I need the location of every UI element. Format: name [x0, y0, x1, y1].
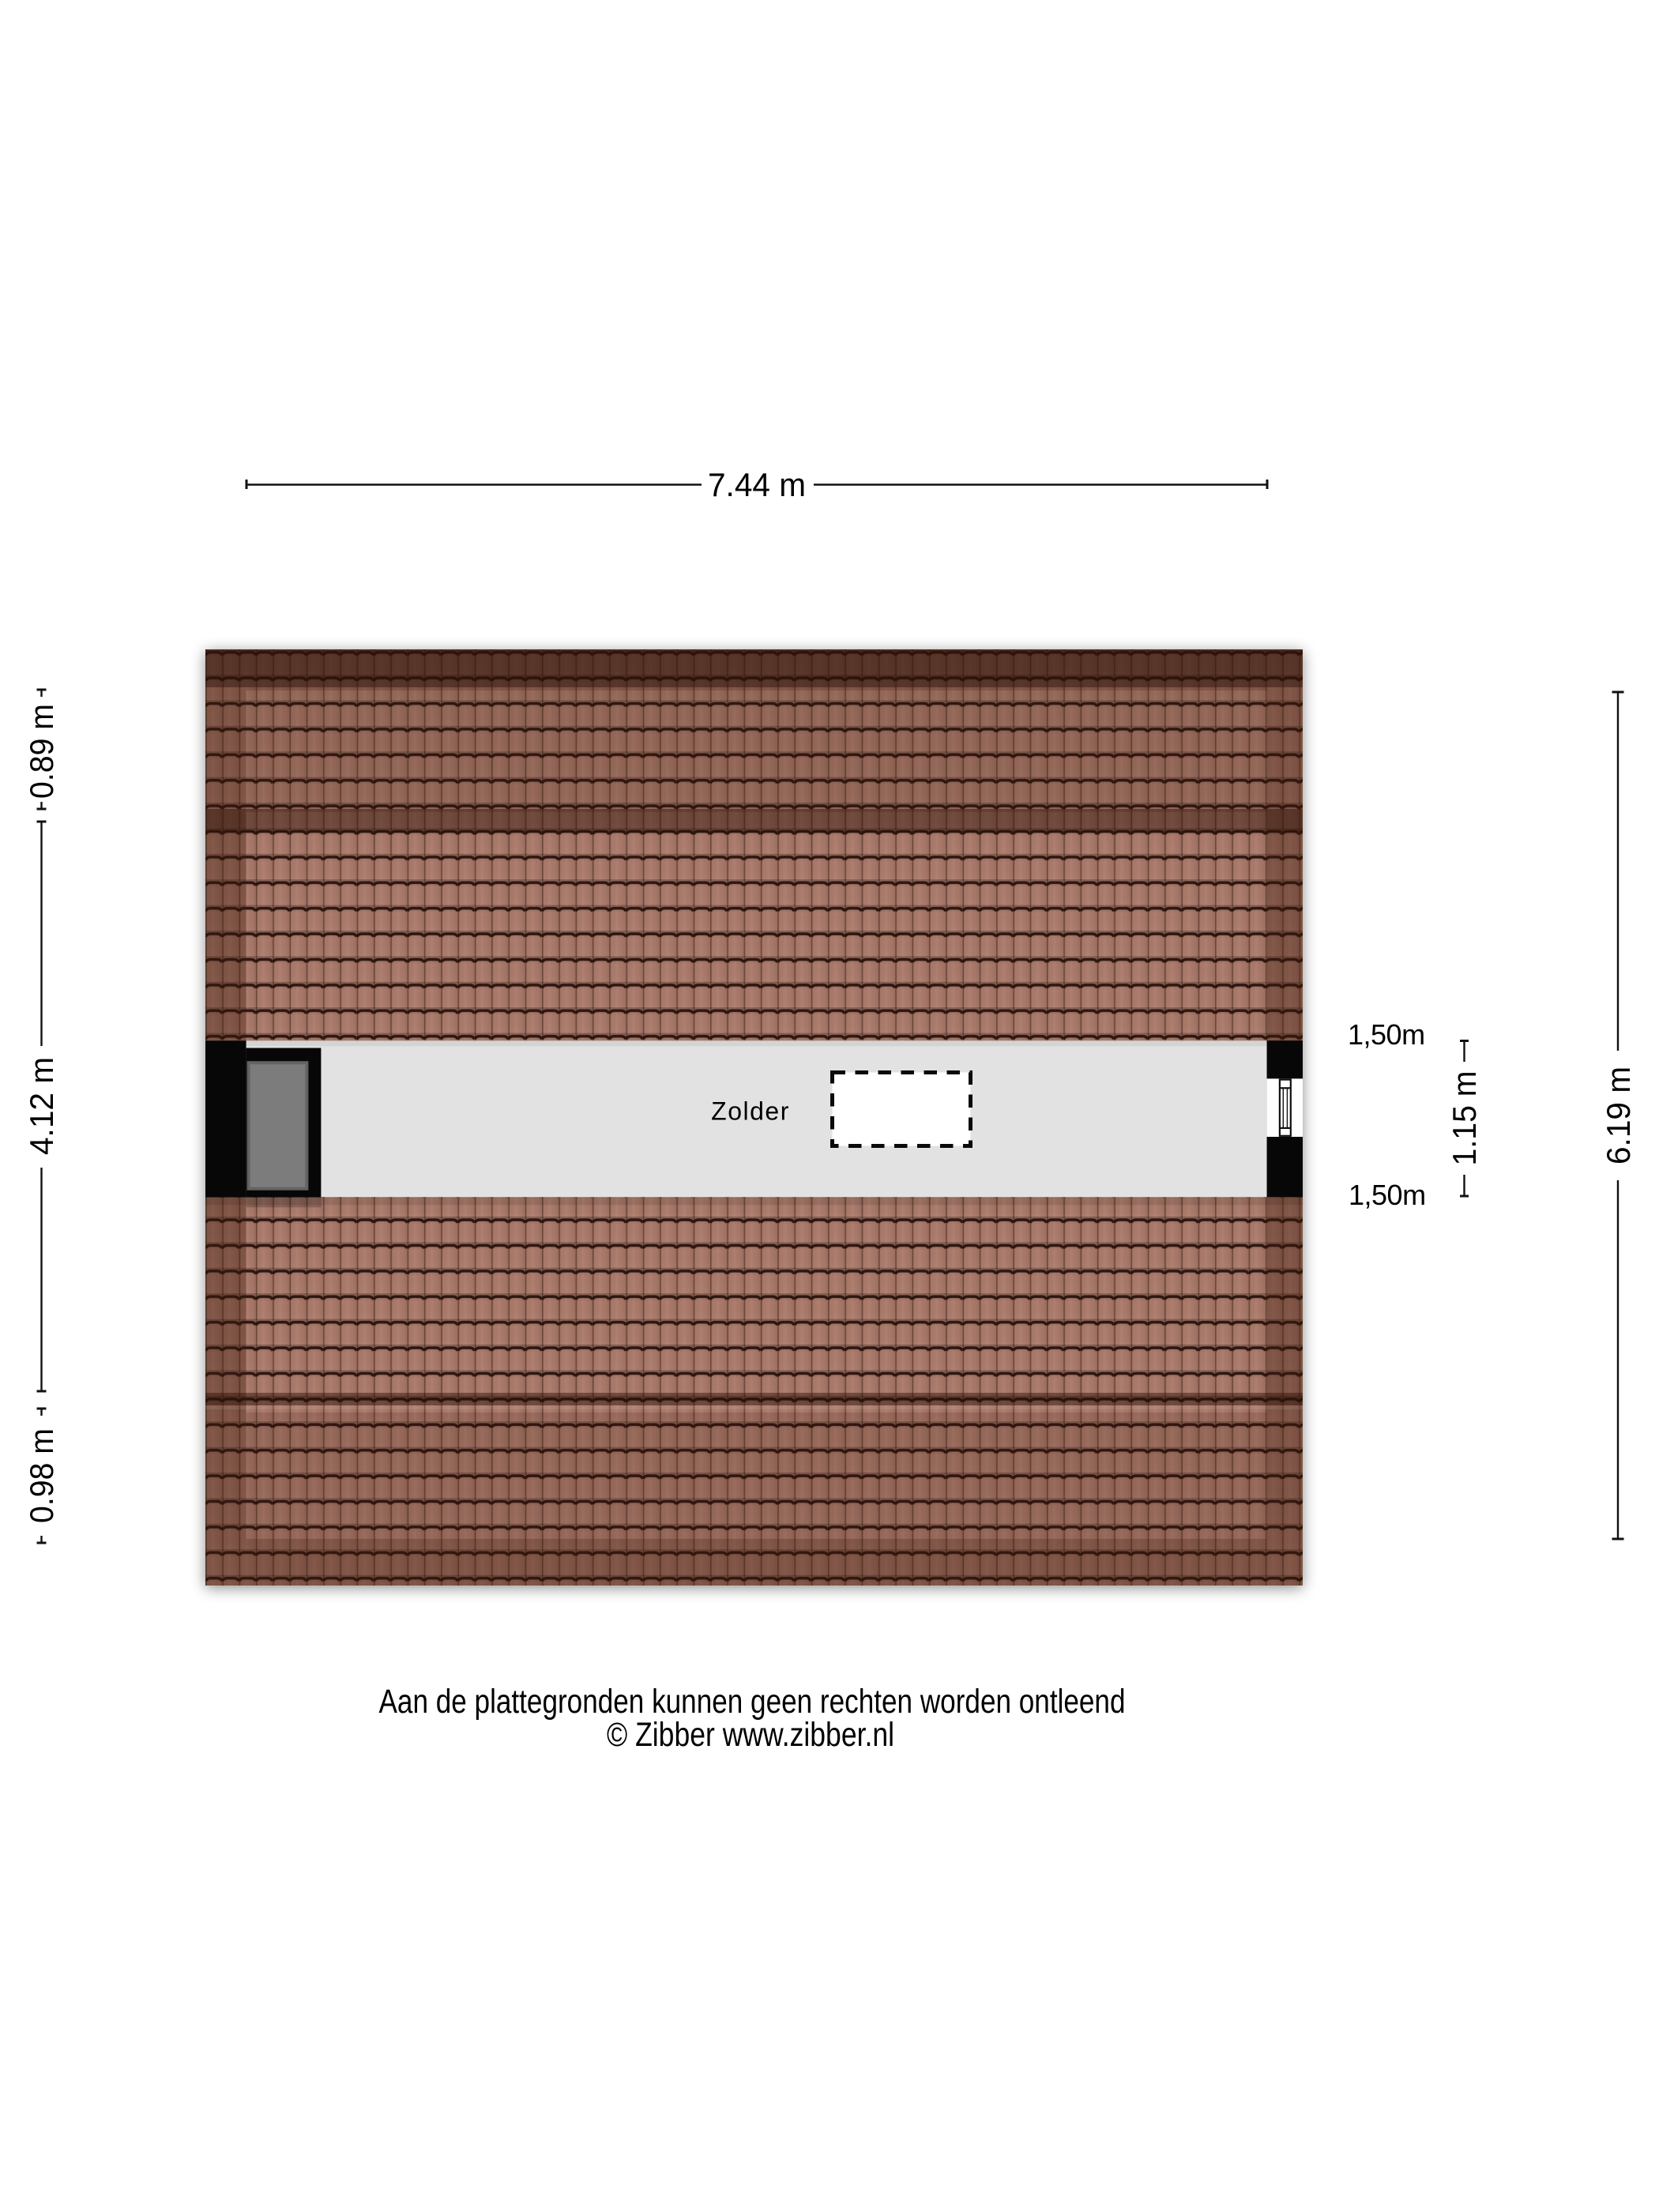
svg-text:4.12 m: 4.12 m [23, 1057, 60, 1155]
svg-text:0.98 m: 0.98 m [23, 1428, 60, 1523]
svg-text:0.89 m: 0.89 m [23, 704, 60, 799]
svg-text:1,50m: 1,50m [1348, 1018, 1425, 1051]
svg-text:6.19 m: 6.19 m [1600, 1066, 1637, 1164]
svg-text:7.44 m: 7.44 m [708, 466, 806, 503]
svg-text:Zolder: Zolder [711, 1097, 790, 1126]
svg-text:© Zibber www.zibber.nl: © Zibber www.zibber.nl [607, 1717, 894, 1754]
svg-text:1.15 m: 1.15 m [1446, 1071, 1483, 1166]
svg-text:1,50m: 1,50m [1349, 1179, 1426, 1211]
svg-text:Aan de plattegronden kunnen ge: Aan de plattegronden kunnen geen rechten… [379, 1683, 1126, 1721]
